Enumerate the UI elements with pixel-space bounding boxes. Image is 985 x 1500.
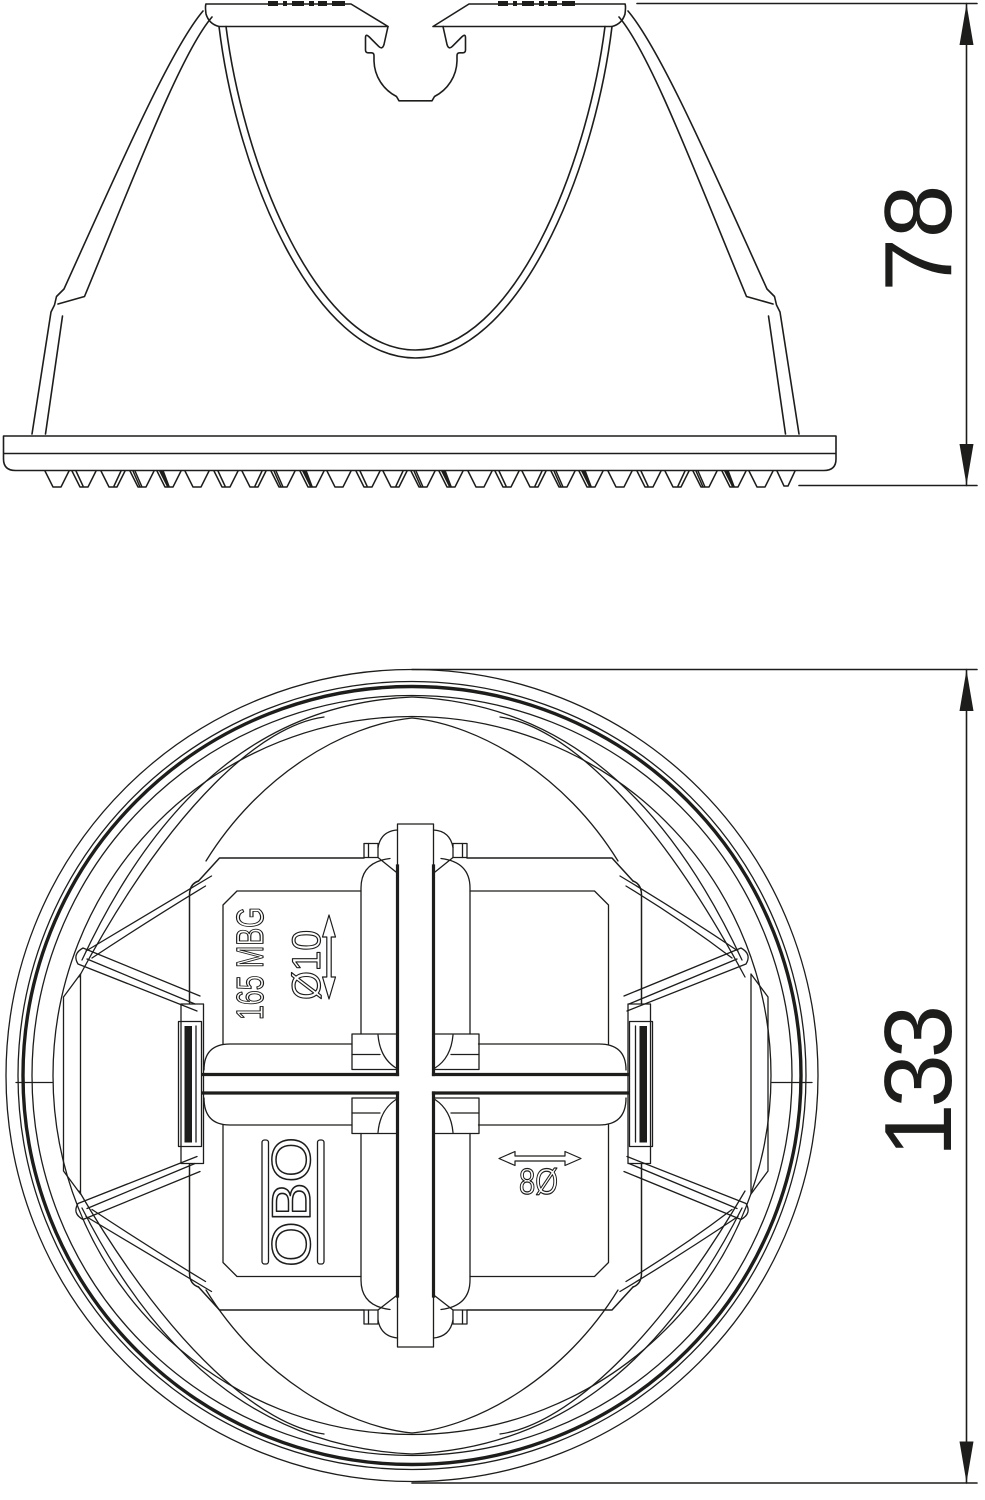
svg-text:Ø10: Ø10: [285, 930, 329, 1000]
svg-text:OBO: OBO: [260, 1137, 322, 1267]
svg-text:165 MBG: 165 MBG: [230, 907, 272, 1020]
svg-text:78: 78: [865, 185, 972, 292]
svg-text:8Ø: 8Ø: [519, 1161, 558, 1202]
svg-text:133: 133: [865, 1008, 972, 1157]
